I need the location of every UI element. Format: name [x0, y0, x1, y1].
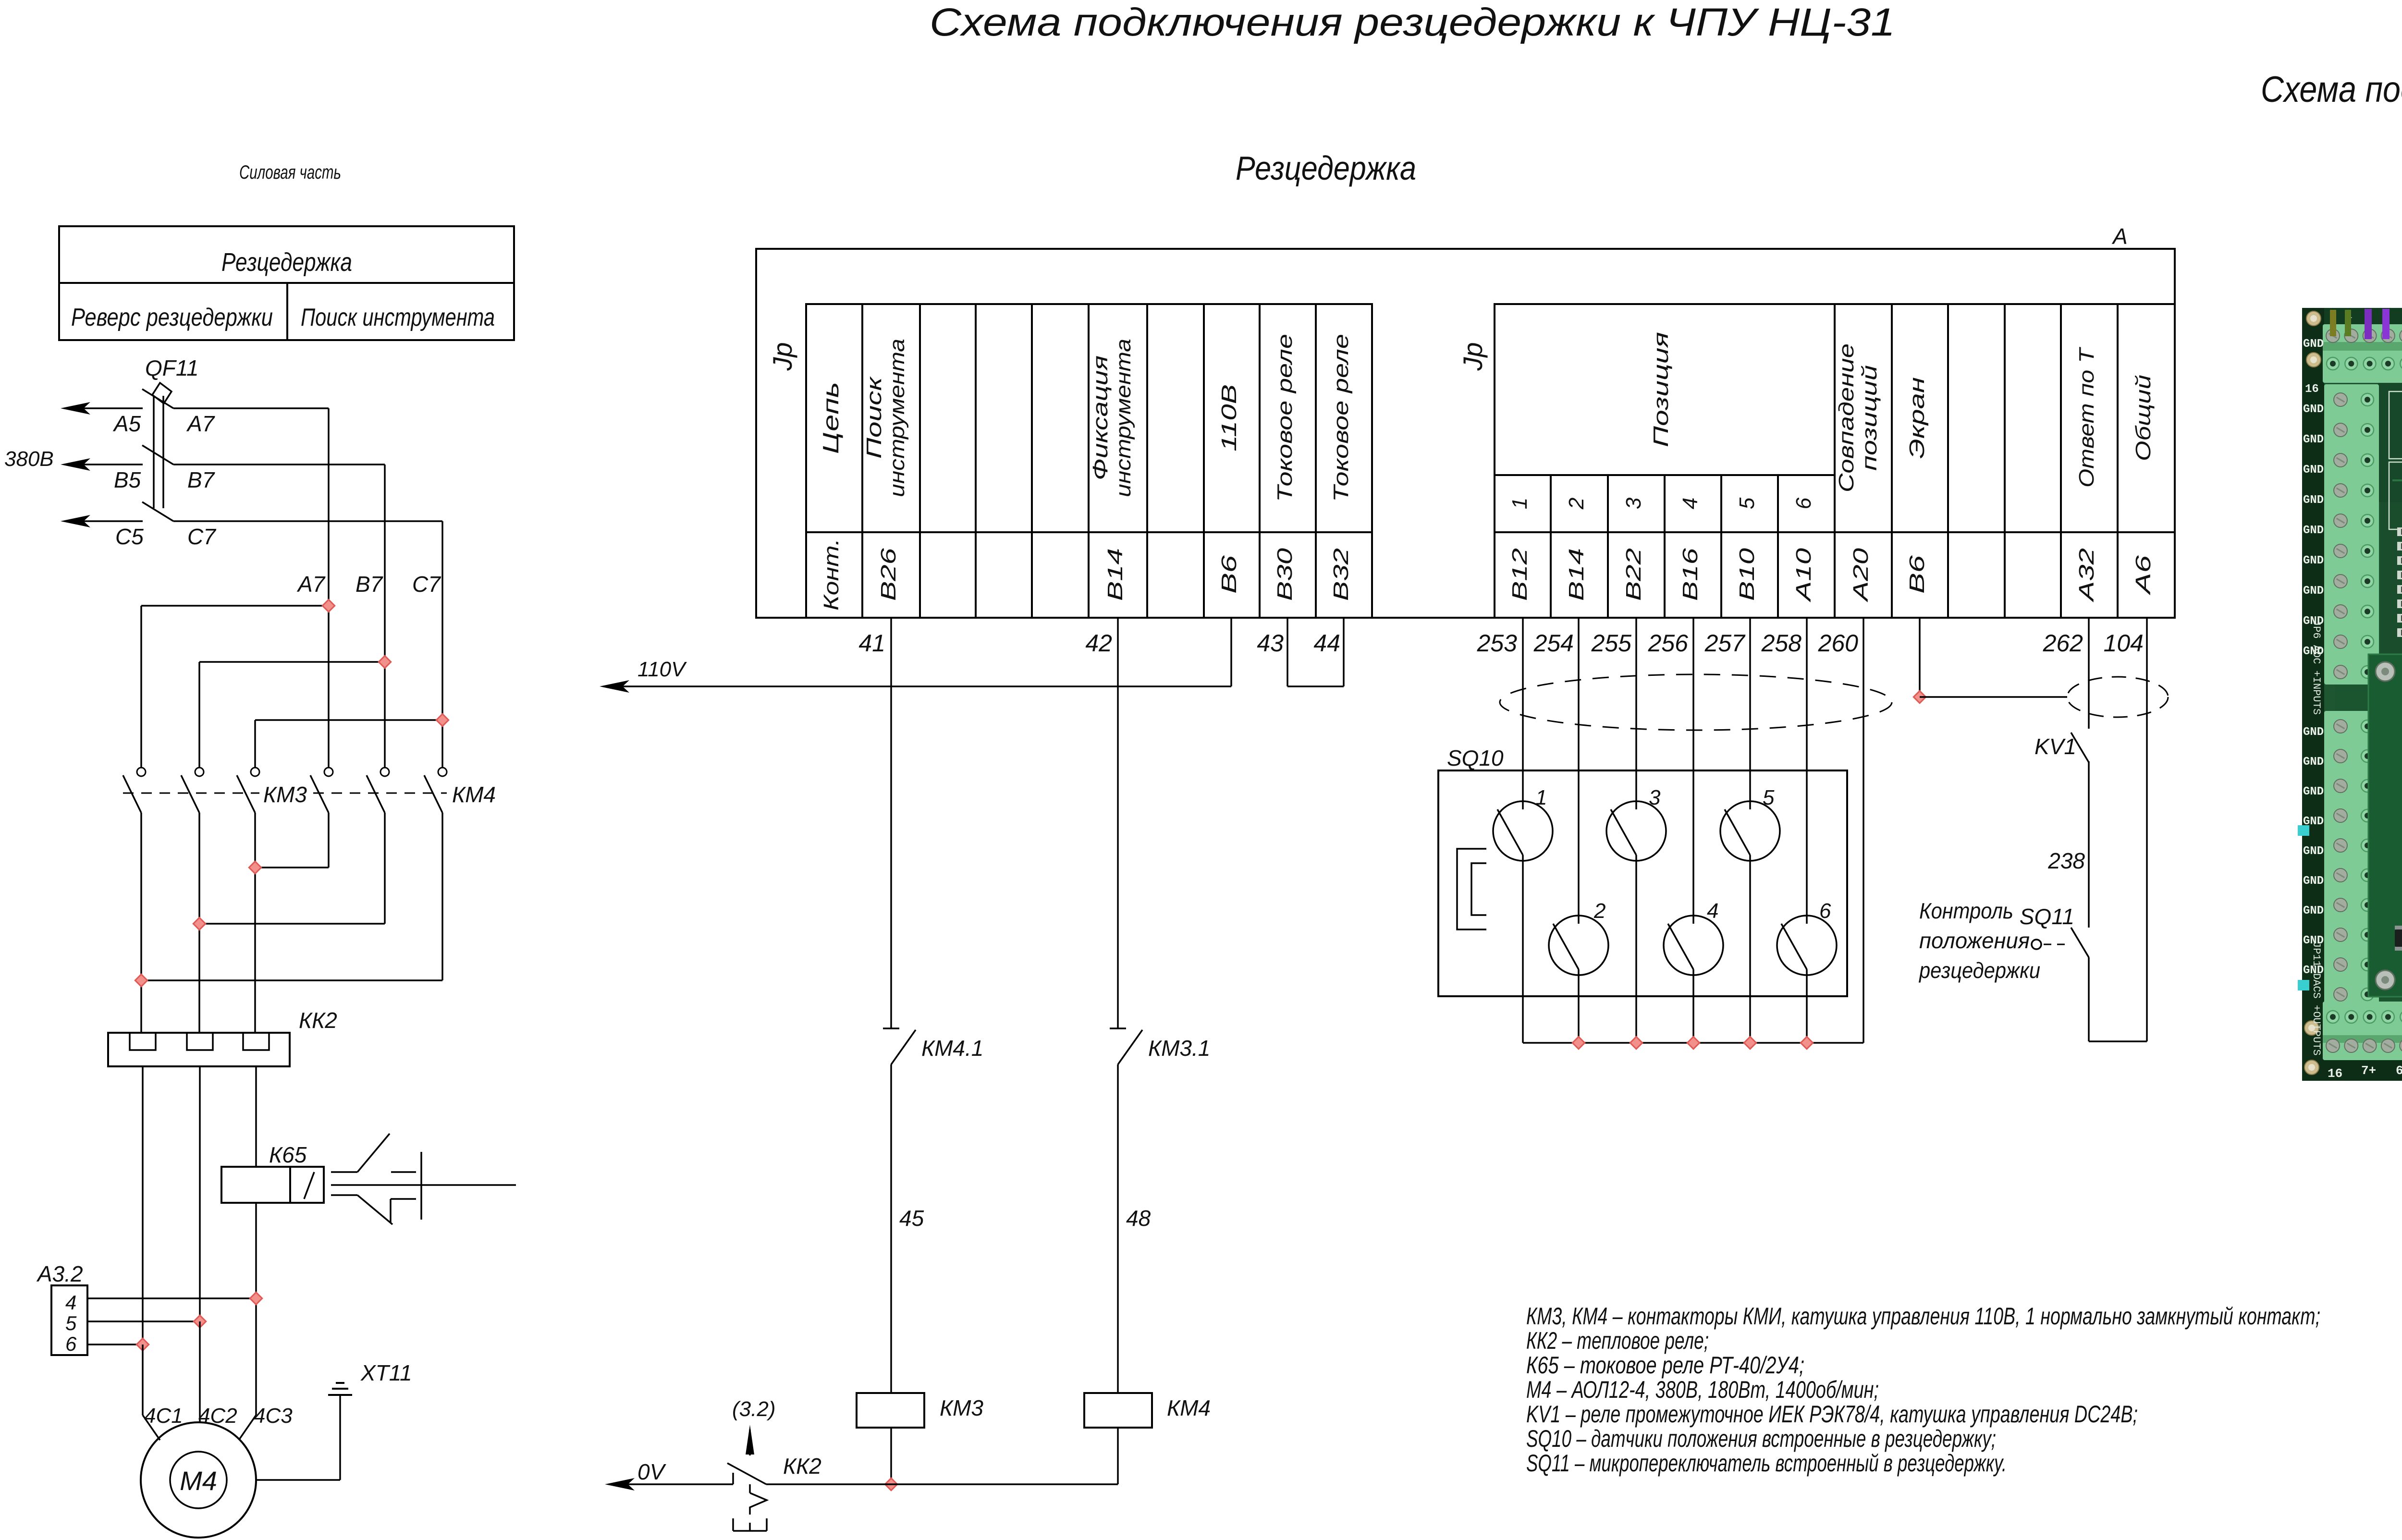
svg-text:А: А — [2111, 224, 2128, 249]
svg-text:4С3: 4С3 — [254, 1404, 293, 1428]
svg-text:С7: С7 — [187, 524, 216, 549]
svg-text:КМ4: КМ4 — [452, 782, 496, 807]
svg-text:ХТ11: ХТ11 — [360, 1360, 412, 1385]
svg-text:А10: А10 — [1792, 548, 1815, 603]
svg-text:GND: GND — [2303, 904, 2324, 917]
svg-text:SQ11 – микропереключатель встр: SQ11 – микропереключатель встроенный в р… — [1526, 1450, 2007, 1477]
svg-text:В30: В30 — [1273, 548, 1297, 601]
svg-text:КМ3: КМ3 — [940, 1395, 983, 1420]
svg-text:45: 45 — [899, 1206, 924, 1231]
svg-text:В14: В14 — [1103, 548, 1127, 601]
svg-text:GND: GND — [2303, 585, 2324, 598]
svg-text:1: 1 — [1508, 498, 1532, 509]
svg-text:380В: 380В — [4, 447, 54, 471]
svg-text:Конт.: Конт. — [820, 538, 843, 611]
svg-text:2: 2 — [1593, 899, 1605, 923]
svg-text:Токовое реле: Токовое реле — [1273, 334, 1297, 502]
svg-text:257: 257 — [1704, 630, 1746, 657]
svg-text:В26: В26 — [877, 548, 900, 601]
svg-text:GND: GND — [2303, 726, 2324, 739]
svg-text:16: 16 — [2328, 1066, 2342, 1081]
svg-text:В32: В32 — [1329, 548, 1353, 601]
svg-text:6+: 6+ — [2396, 1063, 2402, 1078]
svg-text:Экран: Экран — [1905, 377, 1929, 459]
svg-text:42: 42 — [1085, 630, 1112, 657]
svg-text:255: 255 — [1591, 630, 1632, 657]
svg-text:1: 1 — [1535, 786, 1547, 809]
svg-text:Совпадение: Совпадение — [1835, 343, 1858, 492]
svg-text:GND: GND — [2303, 494, 2324, 507]
svg-text:KV1: KV1 — [2034, 734, 2076, 759]
svg-text:48: 48 — [1126, 1206, 1151, 1231]
svg-text:5: 5 — [65, 1312, 77, 1334]
svg-text:6: 6 — [1819, 899, 1831, 923]
svg-text:16: 16 — [2305, 383, 2319, 396]
svg-text:А6: А6 — [2132, 555, 2155, 596]
svg-text:С7: С7 — [412, 572, 441, 597]
svg-text:С5: С5 — [115, 524, 144, 549]
svg-text:4: 4 — [1679, 498, 1702, 509]
svg-text:262: 262 — [2043, 630, 2083, 657]
svg-text:110В: 110В — [1217, 384, 1241, 452]
svg-text:В6: В6 — [1217, 555, 1241, 594]
svg-text:GND: GND — [2303, 338, 2324, 351]
svg-text:резцедержки: резцедержки — [1918, 958, 2040, 983]
svg-text:(3.2): (3.2) — [732, 1397, 775, 1421]
svg-text:104: 104 — [2104, 630, 2144, 657]
svg-text:KV1 – реле промежуточное ИЕК Р: KV1 – реле промежуточное ИЕК РЭК78/4, ка… — [1526, 1401, 2138, 1428]
svg-text:В22: В22 — [1622, 548, 1645, 601]
svg-text:6: 6 — [1792, 497, 1815, 509]
svg-text:инструмента: инструмента — [1112, 339, 1135, 497]
svg-text:6: 6 — [65, 1332, 77, 1355]
svg-text:QF11: QF11 — [145, 355, 199, 380]
svg-text:В12: В12 — [1508, 548, 1532, 601]
svg-text:44: 44 — [1313, 630, 1340, 657]
svg-text:110V: 110V — [637, 658, 687, 681]
svg-text:В6: В6 — [1905, 555, 1929, 594]
svg-text:4: 4 — [1707, 899, 1718, 923]
svg-text:SQ11: SQ11 — [2020, 904, 2074, 929]
svg-text:Схема подключения резцедержки: Схема подключения резцедержки к ЧПУ НЦ-3… — [930, 0, 1895, 44]
svg-text:GND: GND — [2303, 785, 2324, 798]
svg-text:КМ4.1: КМ4.1 — [921, 1036, 983, 1061]
svg-text:7+: 7+ — [2361, 1063, 2376, 1078]
svg-text:А3.2: А3.2 — [36, 1261, 83, 1286]
svg-text:В10: В10 — [1735, 548, 1759, 601]
svg-text:4С2: 4С2 — [198, 1404, 237, 1428]
svg-text:К65: К65 — [269, 1142, 307, 1167]
svg-text:Резцедержка: Резцедержка — [1236, 149, 1416, 187]
svg-text:258: 258 — [1761, 630, 1802, 657]
svg-text:А7: А7 — [186, 411, 215, 436]
svg-text:позиций: позиций — [1858, 365, 1881, 471]
svg-text:Силовая часть: Силовая часть — [239, 162, 341, 183]
svg-text:GND: GND — [2303, 433, 2324, 446]
svg-text:Реверс резцедержки: Реверс резцедержки — [71, 304, 273, 331]
svg-text:В7: В7 — [187, 467, 215, 492]
svg-text:JP11 DACS +OUTPUTS: JP11 DACS +OUTPUTS — [2310, 941, 2322, 1056]
svg-text:SQ10 – датчики положения встро: SQ10 – датчики положения встроенные в ре… — [1526, 1425, 1996, 1452]
svg-text:254: 254 — [1533, 630, 1574, 657]
svg-text:238: 238 — [2047, 848, 2085, 873]
svg-text:GND: GND — [2303, 464, 2324, 477]
svg-text:КК2: КК2 — [299, 1008, 337, 1033]
svg-text:3: 3 — [1622, 497, 1645, 509]
svg-text:3: 3 — [1649, 786, 1661, 809]
svg-text:А7: А7 — [296, 572, 326, 597]
svg-text:JP6 ADC +INPUTS: JP6 ADC +INPUTS — [2310, 620, 2322, 715]
svg-text:А20: А20 — [1849, 548, 1873, 603]
svg-text:43: 43 — [1257, 630, 1284, 657]
svg-text:Фиксация: Фиксация — [1089, 355, 1112, 480]
svg-text:инструмента: инструмента — [885, 339, 909, 497]
svg-text:253: 253 — [1477, 630, 1518, 657]
svg-text:Общий: Общий — [2132, 375, 2155, 461]
svg-text:КК2 – тепловое реле;: КК2 – тепловое реле; — [1526, 1327, 1709, 1354]
svg-text:GND: GND — [2303, 524, 2324, 537]
svg-text:GND: GND — [2303, 554, 2324, 567]
svg-text:КМ3.1: КМ3.1 — [1148, 1036, 1210, 1061]
svg-text:Контроль: Контроль — [1919, 898, 2013, 923]
svg-text:КК2: КК2 — [783, 1454, 821, 1479]
svg-text:Jp: Jp — [767, 342, 797, 371]
svg-text:КМ3, КМ4 – контакторы КМИ, кат: КМ3, КМ4 – контакторы КМИ, катушка управ… — [1526, 1303, 2320, 1330]
svg-text:В5: В5 — [114, 467, 141, 492]
svg-text:Схема подключения резцедержки: Схема подключения резцедержки к Kflop + … — [2261, 69, 2402, 110]
svg-text:М4: М4 — [180, 1466, 217, 1496]
svg-text:В7: В7 — [355, 572, 383, 597]
svg-text:256: 256 — [1648, 630, 1689, 657]
svg-text:положения: положения — [1919, 928, 2030, 953]
svg-text:2: 2 — [1565, 498, 1588, 510]
svg-text:260: 260 — [1818, 630, 1859, 657]
svg-text:Поиск инструмента: Поиск инструмента — [301, 304, 495, 331]
svg-text:КМ3: КМ3 — [263, 782, 307, 807]
svg-text:Цепь: Цепь — [818, 382, 843, 454]
svg-text:4С1: 4С1 — [144, 1404, 183, 1428]
svg-text:5: 5 — [1763, 786, 1775, 809]
svg-text:0V: 0V — [637, 1459, 667, 1484]
svg-text:А5: А5 — [112, 411, 141, 436]
svg-text:41: 41 — [858, 630, 885, 657]
svg-text:Токовое реле: Токовое реле — [1329, 334, 1353, 502]
svg-text:Резцедержка: Резцедержка — [221, 248, 352, 277]
svg-text:GND: GND — [2303, 875, 2324, 888]
svg-text:5: 5 — [1735, 497, 1759, 509]
svg-text:К65 – токовое реле РТ-40/2У4;: К65 – токовое реле РТ-40/2У4; — [1526, 1352, 1804, 1379]
svg-text:М4 – АОЛ12-4, 380В, 180Вт, 140: М4 – АОЛ12-4, 380В, 180Вт, 1400об/мин; — [1526, 1376, 1879, 1403]
svg-text:В14: В14 — [1565, 548, 1588, 601]
svg-text:GND: GND — [2303, 403, 2324, 416]
svg-text:Jp: Jp — [1458, 342, 1488, 371]
svg-text:А32: А32 — [2075, 548, 2098, 603]
svg-text:SQ10: SQ10 — [1447, 746, 1504, 770]
svg-text:Ответ по Т: Ответ по Т — [2075, 346, 2098, 488]
svg-text:КМ4: КМ4 — [1167, 1395, 1211, 1420]
svg-text:GND: GND — [2303, 845, 2324, 858]
svg-text:Поиск: Поиск — [862, 376, 886, 459]
svg-text:GND: GND — [2303, 756, 2324, 769]
svg-text:Позиция: Позиция — [1649, 332, 1673, 447]
svg-text:В16: В16 — [1679, 548, 1702, 601]
svg-text:4: 4 — [65, 1291, 76, 1314]
